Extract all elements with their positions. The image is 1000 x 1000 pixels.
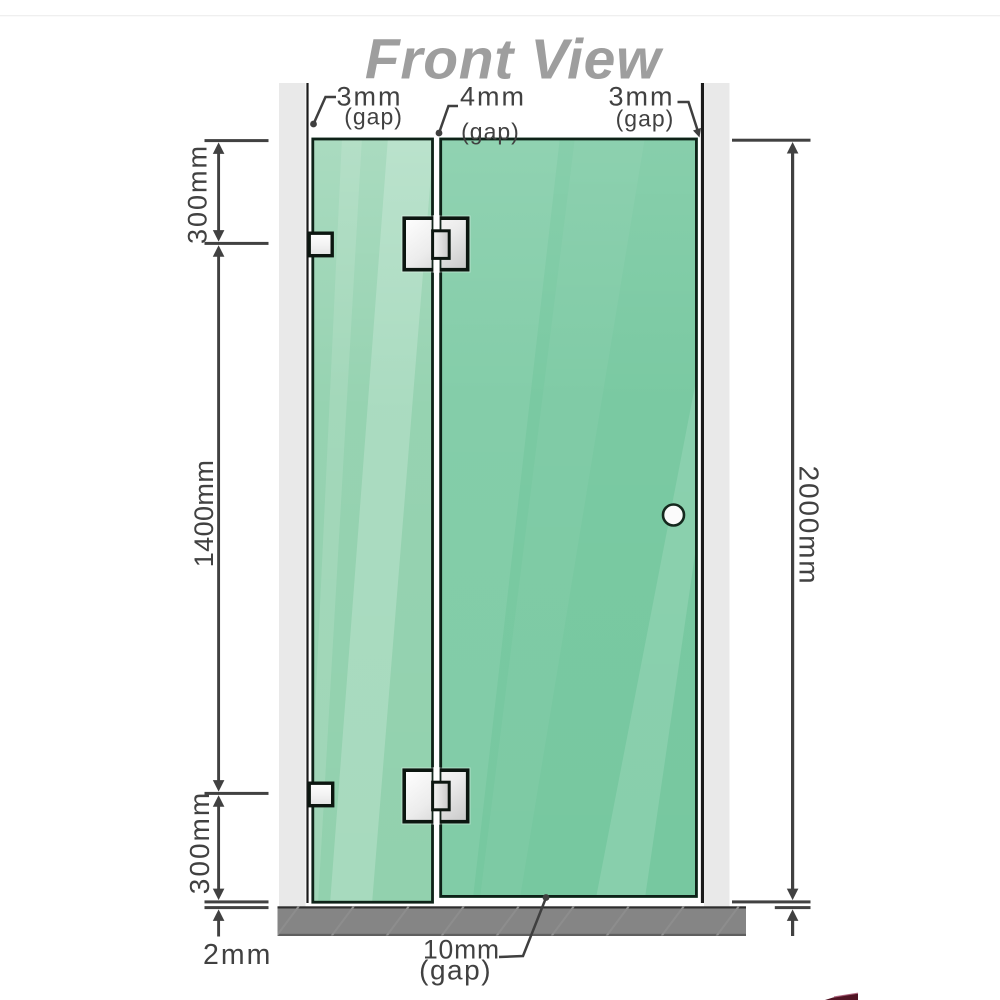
- svg-text:4mm: 4mm: [460, 82, 526, 112]
- svg-text:2000mm: 2000mm: [794, 466, 825, 586]
- svg-text:(gap): (gap): [461, 119, 520, 145]
- svg-text:300mm: 300mm: [184, 791, 215, 894]
- svg-text:(gap): (gap): [419, 955, 492, 986]
- svg-text:2mm: 2mm: [203, 939, 272, 971]
- svg-text:(gap): (gap): [616, 106, 675, 132]
- svg-text:300mm: 300mm: [182, 144, 212, 244]
- svg-text:1400mm: 1400mm: [189, 460, 219, 567]
- svg-text:(gap): (gap): [344, 104, 403, 130]
